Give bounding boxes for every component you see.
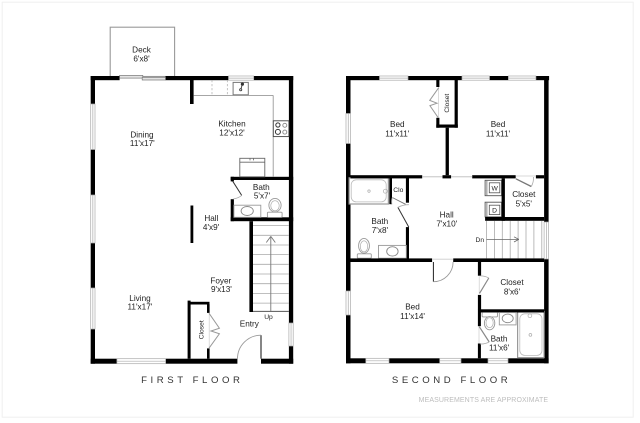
svg-text:11'x14': 11'x14' — [400, 312, 425, 321]
svg-text:Deck: Deck — [132, 45, 152, 54]
svg-text:Hall: Hall — [204, 214, 218, 223]
svg-text:11'x11': 11'x11' — [486, 130, 511, 139]
svg-text:MEASUREMENTS ARE APPROXIMATE: MEASUREMENTS ARE APPROXIMATE — [419, 397, 549, 404]
svg-text:5'x5': 5'x5' — [516, 200, 533, 209]
svg-text:11'x17': 11'x17' — [130, 139, 155, 148]
svg-text:Hall: Hall — [440, 211, 454, 220]
svg-text:8'x6': 8'x6' — [504, 287, 521, 296]
svg-text:5'x7': 5'x7' — [254, 191, 271, 200]
svg-text:Closet: Closet — [444, 94, 451, 113]
svg-text:Clo: Clo — [393, 187, 403, 194]
svg-text:Kitchen: Kitchen — [218, 120, 246, 129]
svg-text:W: W — [491, 185, 498, 192]
svg-text:Entry: Entry — [240, 320, 260, 329]
svg-text:6'x8': 6'x8' — [133, 55, 150, 64]
svg-text:Closet: Closet — [500, 278, 524, 287]
svg-text:Bed: Bed — [405, 303, 420, 312]
svg-text:SECOND FLOOR: SECOND FLOOR — [392, 375, 511, 386]
svg-text:11'x17': 11'x17' — [127, 302, 152, 311]
svg-text:7'x8': 7'x8' — [372, 226, 389, 235]
svg-text:Bath: Bath — [491, 335, 508, 344]
svg-text:Bath: Bath — [371, 217, 388, 226]
svg-text:Bed: Bed — [390, 120, 405, 129]
svg-text:D: D — [492, 207, 497, 214]
svg-text:4'x9': 4'x9' — [203, 223, 220, 232]
svg-text:FIRST FLOOR: FIRST FLOOR — [141, 375, 243, 386]
svg-text:11'x6': 11'x6' — [489, 344, 510, 353]
svg-text:11'x11': 11'x11' — [385, 130, 410, 139]
svg-text:Bed: Bed — [491, 120, 506, 129]
svg-text:Up: Up — [264, 314, 273, 321]
svg-text:9'x13': 9'x13' — [211, 285, 232, 294]
svg-text:Foyer: Foyer — [210, 276, 231, 285]
svg-text:7'x10': 7'x10' — [436, 219, 457, 228]
svg-text:Closet: Closet — [199, 320, 206, 339]
svg-text:Closet: Closet — [512, 190, 536, 199]
svg-text:12'x12': 12'x12' — [219, 129, 245, 138]
svg-text:Dn: Dn — [476, 237, 485, 244]
